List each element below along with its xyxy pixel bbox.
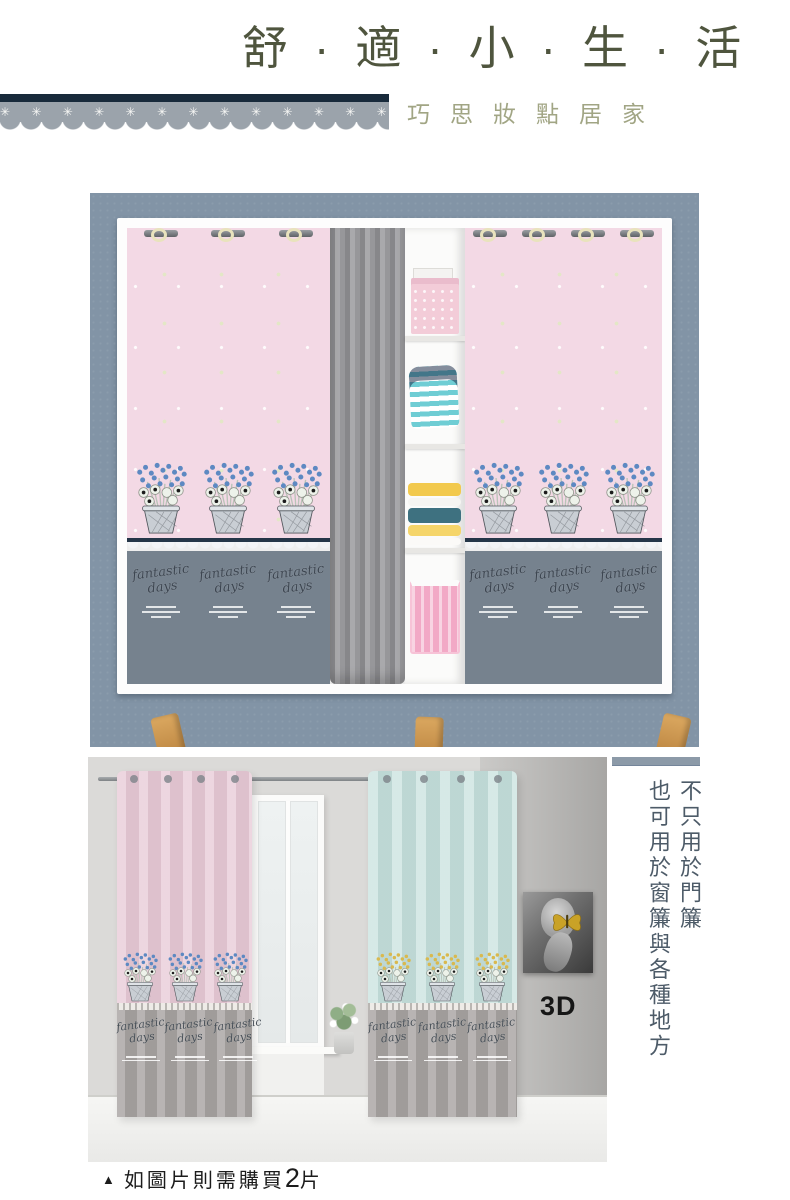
flower-basket-icon bbox=[165, 945, 205, 1003]
storage-box-pink bbox=[411, 278, 459, 334]
flower-basket-row bbox=[465, 452, 662, 536]
flower-basket-icon bbox=[267, 456, 325, 536]
pattern-fine-print bbox=[133, 606, 189, 618]
grommet-row bbox=[465, 228, 662, 248]
main-product-photo: fantastic days fantastic days fantastic … bbox=[90, 193, 699, 747]
grommet-row bbox=[368, 771, 517, 787]
pattern-fine-print bbox=[268, 606, 324, 618]
wardrobe-leg bbox=[654, 712, 692, 747]
flower-basket-row bbox=[117, 943, 252, 1003]
curtain-panel-left: fantastic days fantastic days fantastic … bbox=[127, 228, 330, 684]
pink-laundry-basket bbox=[410, 580, 460, 654]
mint-curtain: fantastic days fantastic days fantastic … bbox=[368, 771, 517, 1117]
pattern-fine-print bbox=[368, 1056, 418, 1061]
pattern-script: fantastic days bbox=[418, 1018, 468, 1117]
gold-butterfly-icon bbox=[549, 908, 585, 936]
curtain-mint-fabric bbox=[368, 771, 517, 1003]
secondary-product-photo: fantastic days fantastic days fantastic … bbox=[88, 757, 607, 1162]
wardrobe-interior: fantastic days fantastic days fantastic … bbox=[127, 228, 662, 684]
window-pane bbox=[290, 801, 318, 1043]
lace-flower-row: ✳ ✳ ✳ ✳ ✳ ✳ ✳ ✳ ✳ ✳ ✳ ✳ ✳ ✳ ✳ ✳ ✳ bbox=[0, 102, 389, 122]
curtain-lace-trim bbox=[465, 542, 662, 551]
curtain-pink-fabric bbox=[465, 228, 662, 538]
purchase-note: ▲ 如圖片則需購買 2 片 bbox=[102, 1163, 322, 1194]
pattern-script: fantastic days bbox=[133, 565, 189, 621]
pattern-script: fantastic days bbox=[268, 565, 324, 621]
shelf-divider bbox=[405, 336, 465, 341]
pattern-fine-print bbox=[200, 606, 256, 618]
pattern-script: fantastic days bbox=[165, 1018, 213, 1117]
curtain-pink-fabric bbox=[127, 228, 330, 538]
lace-border-decoration: ✳ ✳ ✳ ✳ ✳ ✳ ✳ ✳ ✳ ✳ ✳ ✳ ✳ ✳ ✳ ✳ ✳ bbox=[0, 94, 389, 131]
flower-basket-icon bbox=[472, 945, 512, 1003]
flower-basket-icon bbox=[422, 945, 462, 1003]
flower-basket-icon bbox=[373, 945, 413, 1003]
side-vertical-note: 不只用於門簾 也可用於窗簾與各種地方 bbox=[641, 779, 705, 1091]
side-accent-bar bbox=[612, 757, 700, 766]
purchase-note-text: 如圖片則需購買 bbox=[124, 1164, 285, 1193]
side-note-line-2: 也可用於窗簾與各種地方 bbox=[643, 779, 674, 1091]
curtain-trim-band bbox=[368, 1003, 517, 1010]
window bbox=[252, 795, 324, 1049]
grommet-row bbox=[127, 228, 330, 248]
wainscot-panel bbox=[252, 1054, 324, 1095]
page-title: 舒·適·小·生·活 bbox=[242, 12, 767, 78]
pattern-fine-print bbox=[165, 1056, 213, 1061]
flower-basket-icon bbox=[469, 456, 527, 536]
grommet-icon bbox=[144, 228, 178, 246]
wall-art-portrait bbox=[523, 892, 593, 973]
shelf-divider bbox=[405, 548, 465, 553]
pattern-fine-print bbox=[418, 1056, 468, 1061]
flower-basket-row bbox=[368, 943, 517, 1003]
curtain-lace-trim bbox=[127, 542, 330, 551]
lace-scallop-edge bbox=[0, 122, 389, 131]
plant-foliage bbox=[326, 1000, 362, 1034]
shelf-divider bbox=[405, 444, 465, 449]
grommet-row bbox=[117, 771, 252, 787]
purchase-quantity: 2 bbox=[285, 1163, 300, 1194]
curtain-pink-fabric bbox=[117, 771, 252, 1003]
pattern-fine-print bbox=[535, 606, 591, 618]
grommet-icon bbox=[522, 228, 556, 246]
flower-basket-icon bbox=[199, 456, 257, 536]
curtain-gray-section: fantastic days fantastic days fantastic … bbox=[368, 1010, 517, 1117]
pattern-script: fantastic days bbox=[470, 565, 526, 621]
flower-basket-icon bbox=[132, 456, 190, 536]
wardrobe-leg bbox=[150, 712, 188, 747]
purchase-note-suffix: 片 bbox=[300, 1164, 322, 1193]
grommet-icon bbox=[620, 228, 654, 246]
striped-pillow bbox=[408, 365, 459, 429]
pattern-fine-print bbox=[214, 1056, 262, 1061]
grommet-icon bbox=[211, 228, 245, 246]
grommet-icon bbox=[571, 228, 605, 246]
pattern-fine-print bbox=[467, 1056, 517, 1061]
flower-basket-icon bbox=[534, 456, 592, 536]
triangle-marker-icon: ▲ bbox=[102, 1172, 115, 1187]
curtain-gray-section: fantastic days fantastic days fantastic … bbox=[465, 551, 662, 684]
wardrobe-frame: fantastic days fantastic days fantastic … bbox=[117, 218, 672, 694]
pattern-script: fantastic days bbox=[117, 1018, 165, 1117]
potted-plant bbox=[326, 1000, 362, 1056]
pattern-fine-print bbox=[470, 606, 526, 618]
product-page: 舒·適·小·生·活 ✳ ✳ ✳ ✳ ✳ ✳ ✳ ✳ ✳ ✳ ✳ ✳ ✳ ✳ ✳ … bbox=[0, 0, 790, 1200]
curtain-gray-section: fantastic days fantastic days fantastic … bbox=[117, 1010, 252, 1117]
pink-curtain: fantastic days fantastic days fantastic … bbox=[117, 771, 252, 1117]
window-pane bbox=[258, 801, 286, 1043]
curtain-panel-right: fantastic days fantastic days fantastic … bbox=[465, 228, 662, 684]
flower-basket-icon bbox=[210, 945, 250, 1003]
wardrobe-shelf-column bbox=[405, 228, 465, 684]
grommet-icon bbox=[279, 228, 313, 246]
side-note-line-1: 不只用於門簾 bbox=[674, 779, 705, 1091]
curtain-trim-band bbox=[117, 1003, 252, 1010]
flower-basket-row bbox=[127, 452, 330, 536]
curtain-gray-section: fantastic days fantastic days fantastic … bbox=[127, 551, 330, 684]
plant-pot bbox=[334, 1032, 354, 1054]
flower-basket-icon bbox=[120, 945, 160, 1003]
lace-navy-bar bbox=[0, 94, 389, 102]
flower-basket-icon bbox=[600, 456, 658, 536]
pattern-fine-print bbox=[601, 606, 657, 618]
grommet-icon bbox=[473, 228, 507, 246]
pattern-fine-print bbox=[117, 1056, 165, 1061]
pattern-script: fantastic days bbox=[200, 565, 256, 621]
pattern-script: fantastic days bbox=[214, 1018, 262, 1117]
pattern-script: fantastic days bbox=[368, 1018, 418, 1117]
page-subtitle: 巧思妝點居家 bbox=[407, 95, 665, 129]
pattern-script: fantastic days bbox=[535, 565, 591, 621]
middle-gray-curtain bbox=[330, 228, 405, 684]
folded-towels bbox=[408, 483, 461, 547]
wardrobe-leg bbox=[414, 717, 444, 747]
3d-label: 3D bbox=[540, 991, 577, 1022]
pattern-script: fantastic days bbox=[467, 1018, 517, 1117]
pattern-script: fantastic days bbox=[601, 565, 657, 621]
